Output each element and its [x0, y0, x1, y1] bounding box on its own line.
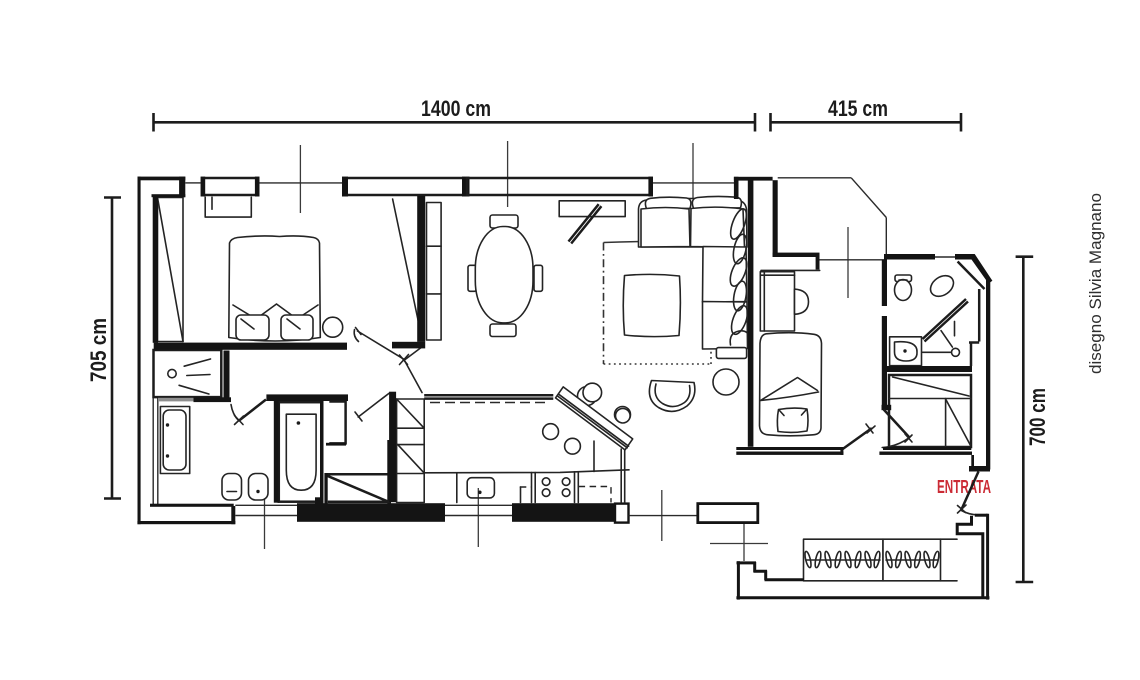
- svg-text:1400 cm: 1400 cm: [421, 96, 491, 121]
- svg-text:ENTRATA: ENTRATA: [937, 477, 991, 497]
- svg-text:705 cm: 705 cm: [86, 318, 111, 382]
- svg-text:700 cm: 700 cm: [1025, 388, 1050, 446]
- svg-text:415 cm: 415 cm: [828, 96, 888, 121]
- svg-text:disegno Silvia Magnano: disegno Silvia Magnano: [1086, 193, 1105, 374]
